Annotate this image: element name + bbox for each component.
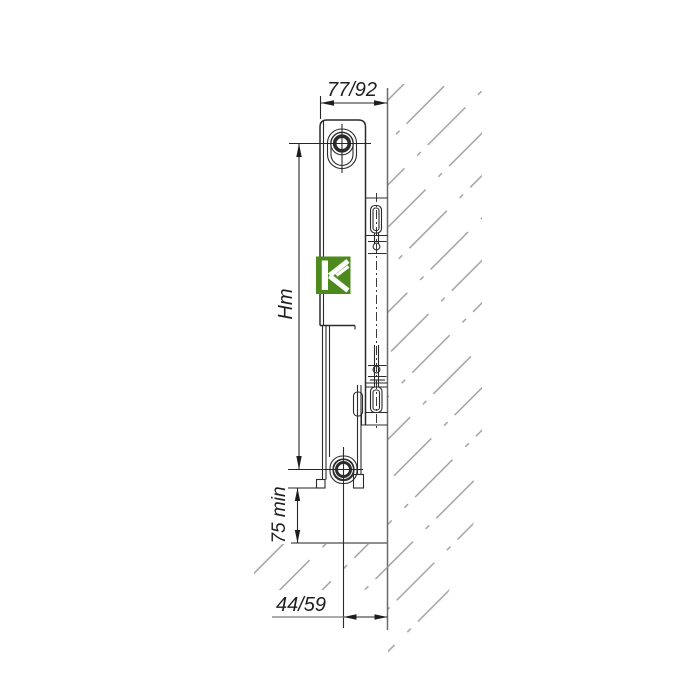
radiator-body <box>317 120 366 488</box>
arrowhead-right <box>375 614 388 619</box>
dimension-floor-clearance: 75 min <box>269 486 325 543</box>
top-connection-boss <box>328 124 357 173</box>
bottom-foot-right <box>354 475 364 489</box>
arrowhead-up <box>296 144 301 158</box>
arrowhead-up <box>295 488 300 501</box>
arrowhead-left <box>321 100 335 105</box>
dimension-wall-offset: 44/59 <box>272 594 388 620</box>
bottom-foot-left <box>317 480 326 489</box>
bottom-connection-boss <box>330 447 357 628</box>
logo-k-stem <box>322 261 328 291</box>
arrowhead-right <box>374 100 388 105</box>
floor-hatching <box>254 543 388 590</box>
diagram-canvas: 77/92 Hm 75 min 44/59 <box>0 0 700 700</box>
radiator-technical-drawing: 77/92 Hm 75 min 44/59 <box>0 0 700 700</box>
arrowhead-down <box>296 456 301 470</box>
kermi-logo <box>316 257 351 295</box>
height-dimension-label: Hm <box>275 288 297 319</box>
wall-offset-label: 44/59 <box>276 594 326 616</box>
wall-hatching <box>380 84 490 656</box>
dimension-depth: 77/92 <box>321 79 388 119</box>
arrowhead-down <box>295 530 300 543</box>
arrowhead-left <box>344 614 357 619</box>
floor-clearance-label: 75 min <box>269 486 290 543</box>
wall <box>380 84 490 656</box>
depth-dimension-label: 77/92 <box>327 79 377 101</box>
floor <box>254 543 388 590</box>
